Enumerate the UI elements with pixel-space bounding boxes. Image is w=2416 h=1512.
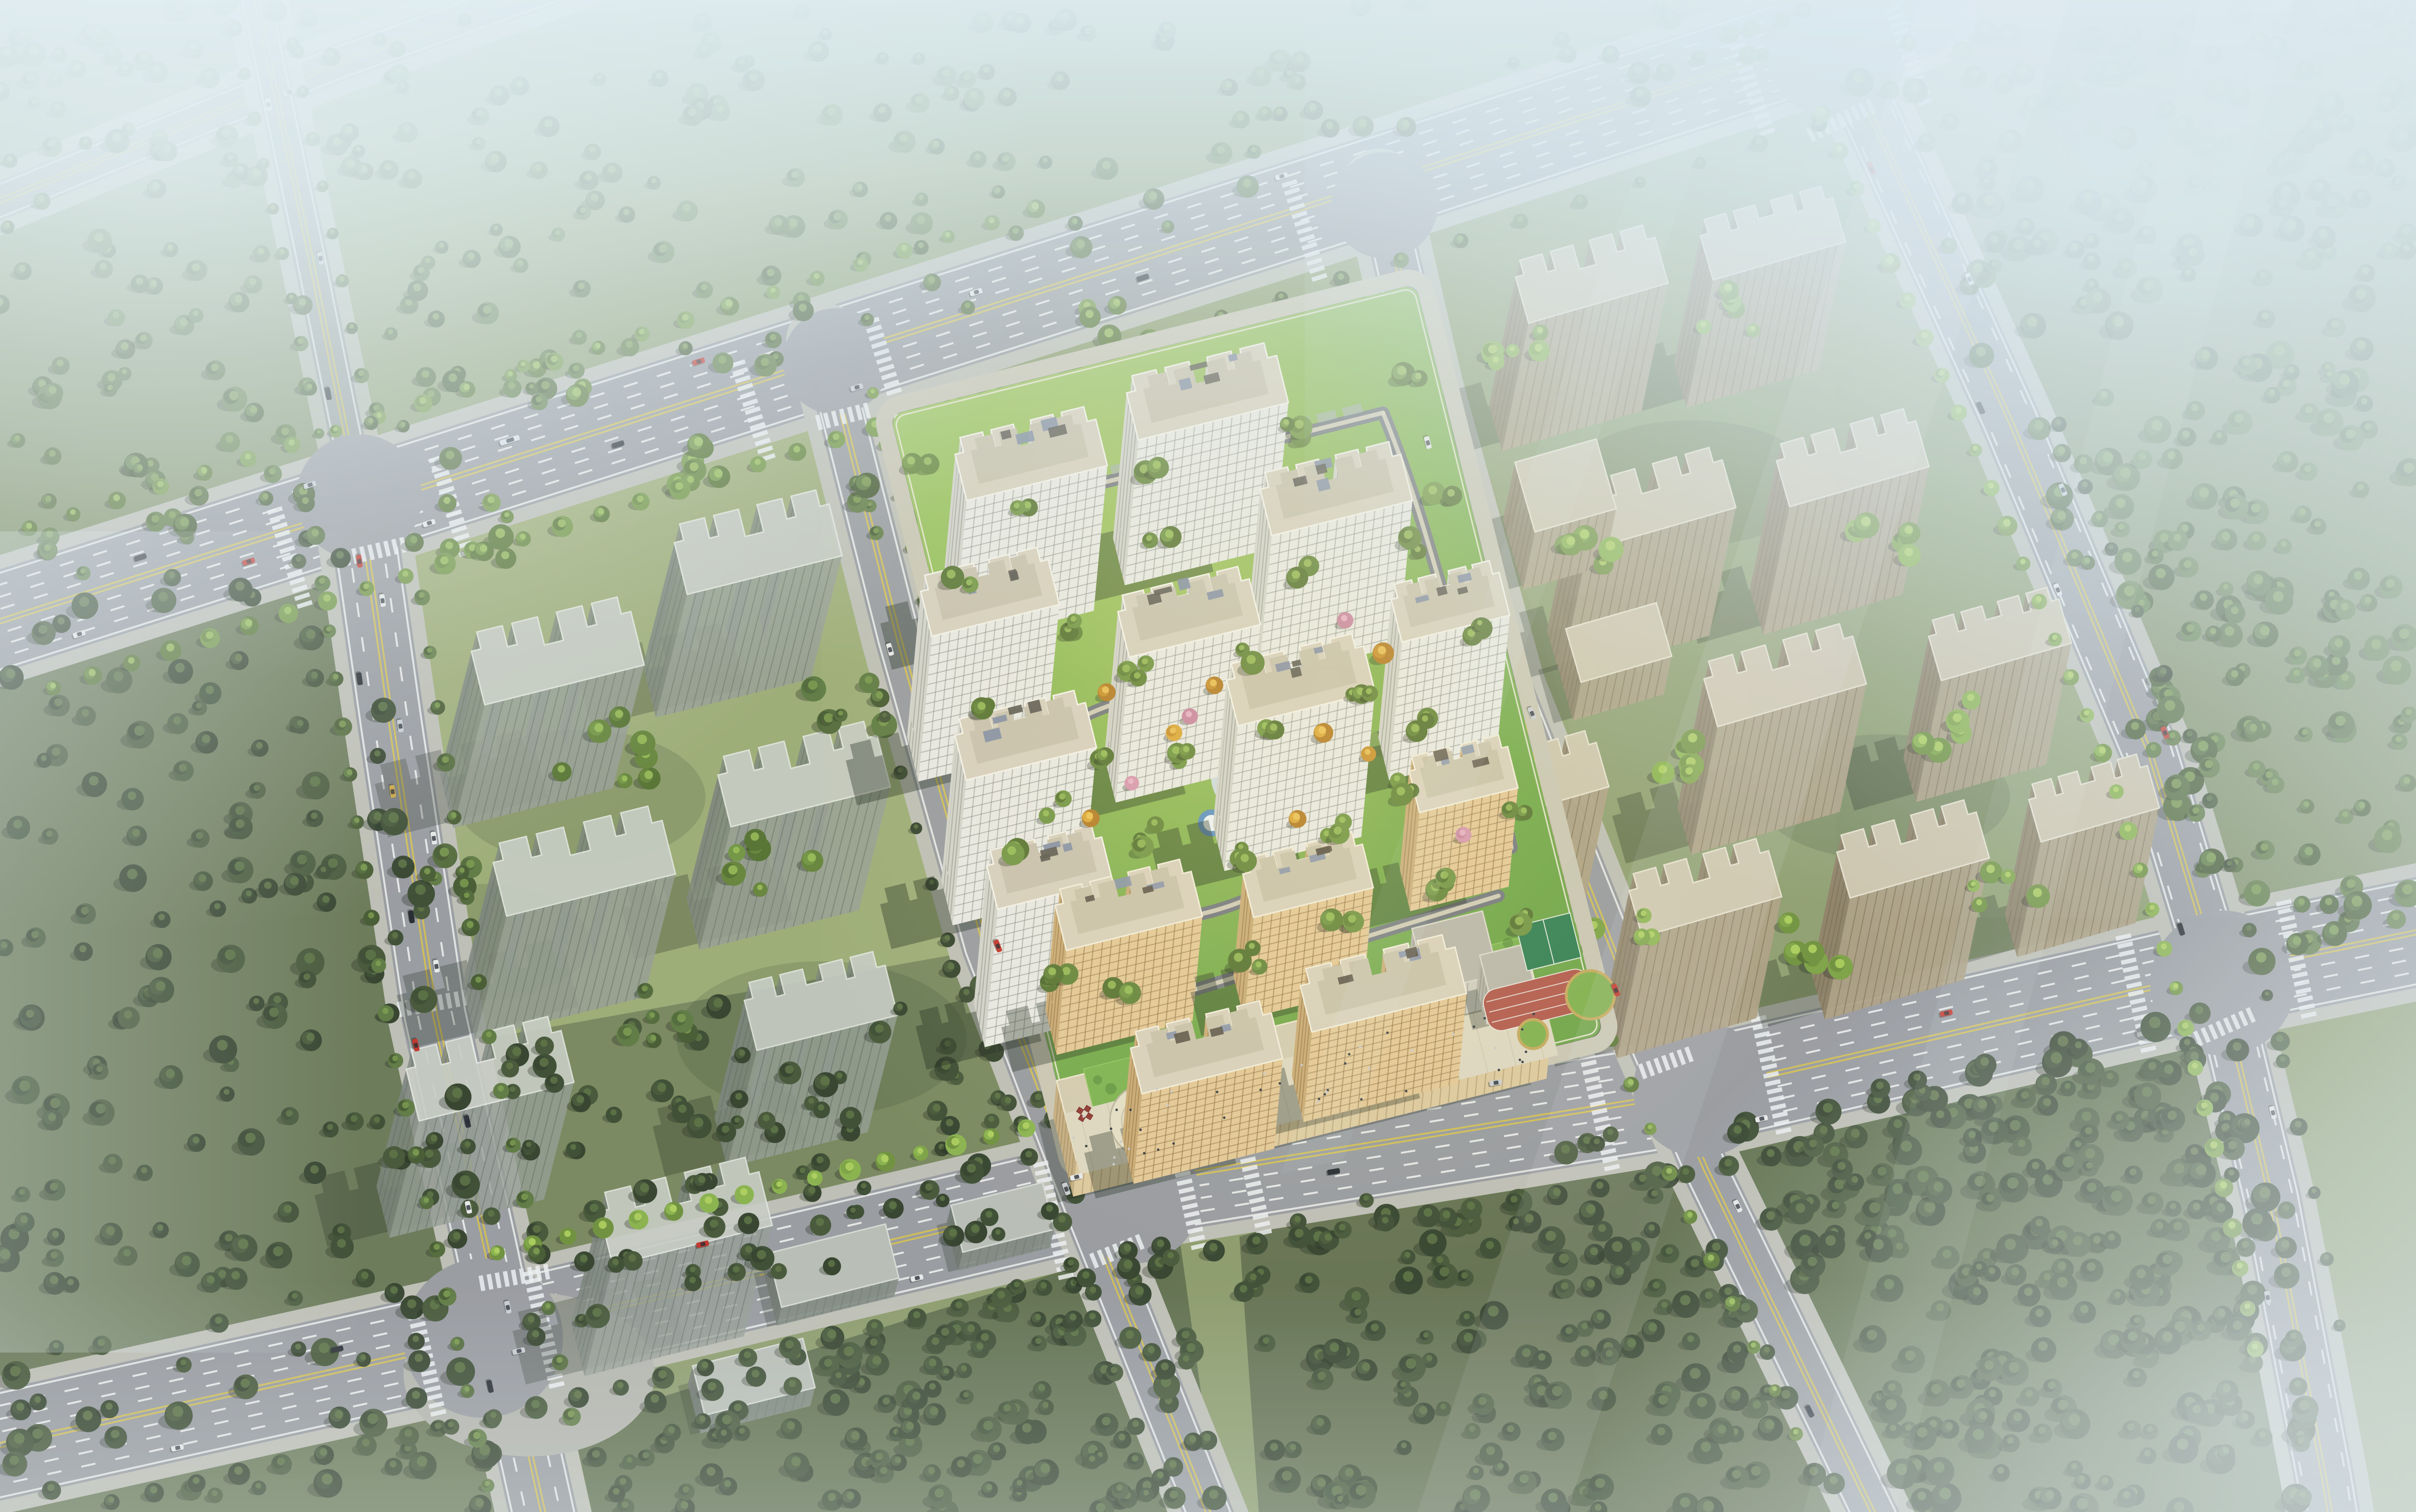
atmosphere <box>0 0 2416 1512</box>
aerial-city-render <box>0 0 2416 1512</box>
render-canvas <box>0 0 2416 1512</box>
